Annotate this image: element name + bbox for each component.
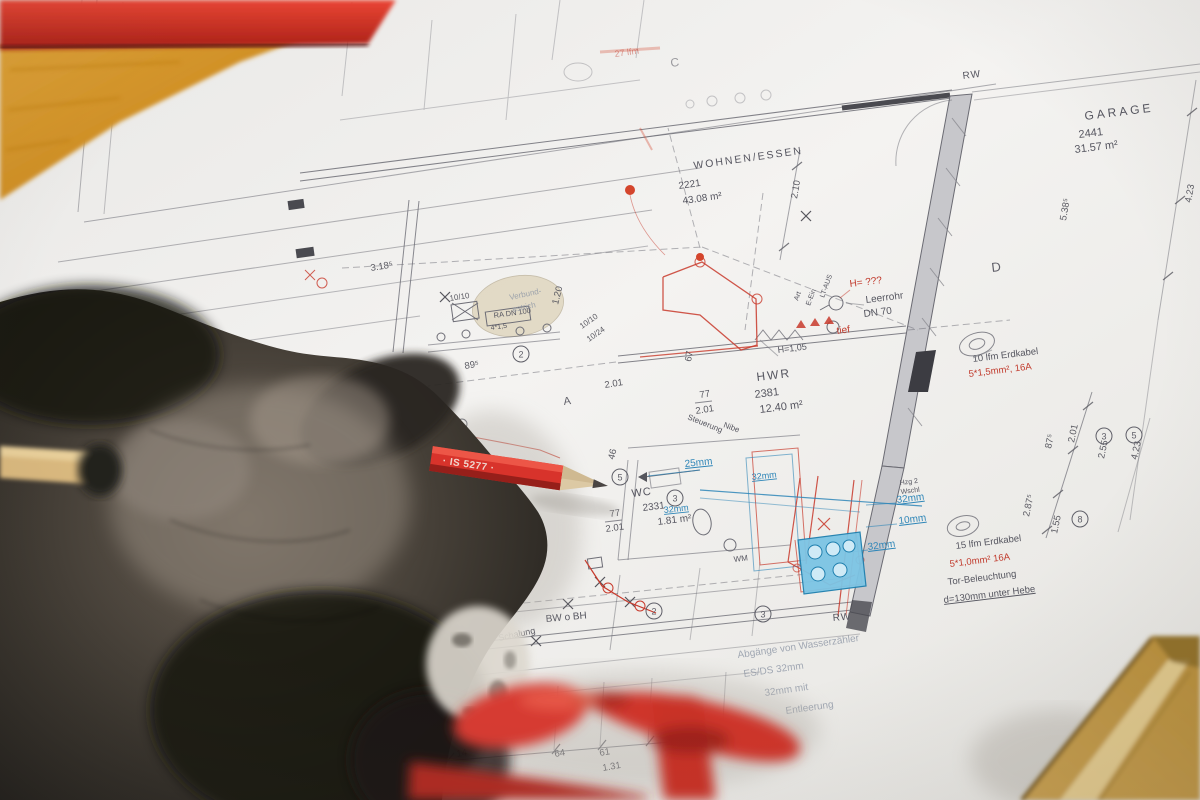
vignette xyxy=(0,0,1200,800)
photo-scene: GARAGE244131.57 m²WOHNEN/ESSEN222143.08 … xyxy=(0,0,1200,800)
photo-svg: GARAGE244131.57 m²WOHNEN/ESSEN222143.08 … xyxy=(0,0,1200,800)
